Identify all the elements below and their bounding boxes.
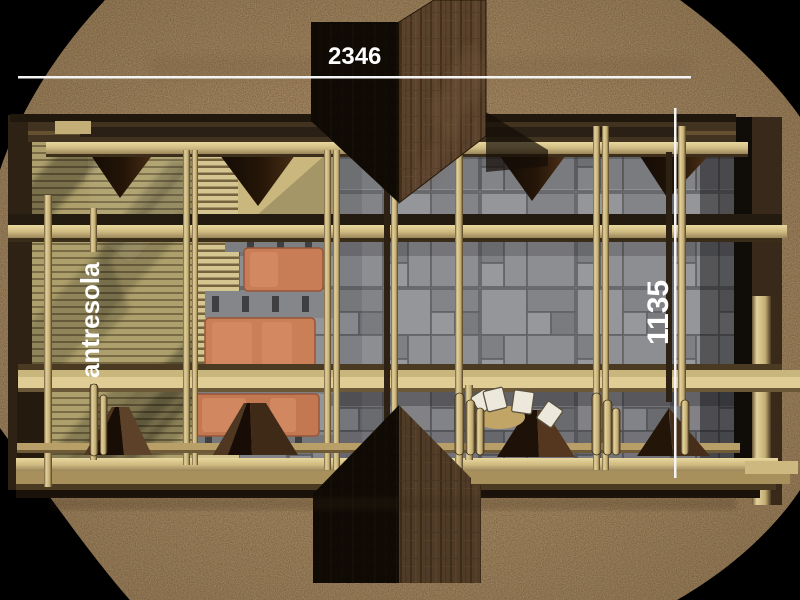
svg-text:2346: 2346 <box>328 43 381 70</box>
svg-text:antresola: antresola <box>75 262 105 378</box>
svg-text:1135: 1135 <box>642 280 675 345</box>
